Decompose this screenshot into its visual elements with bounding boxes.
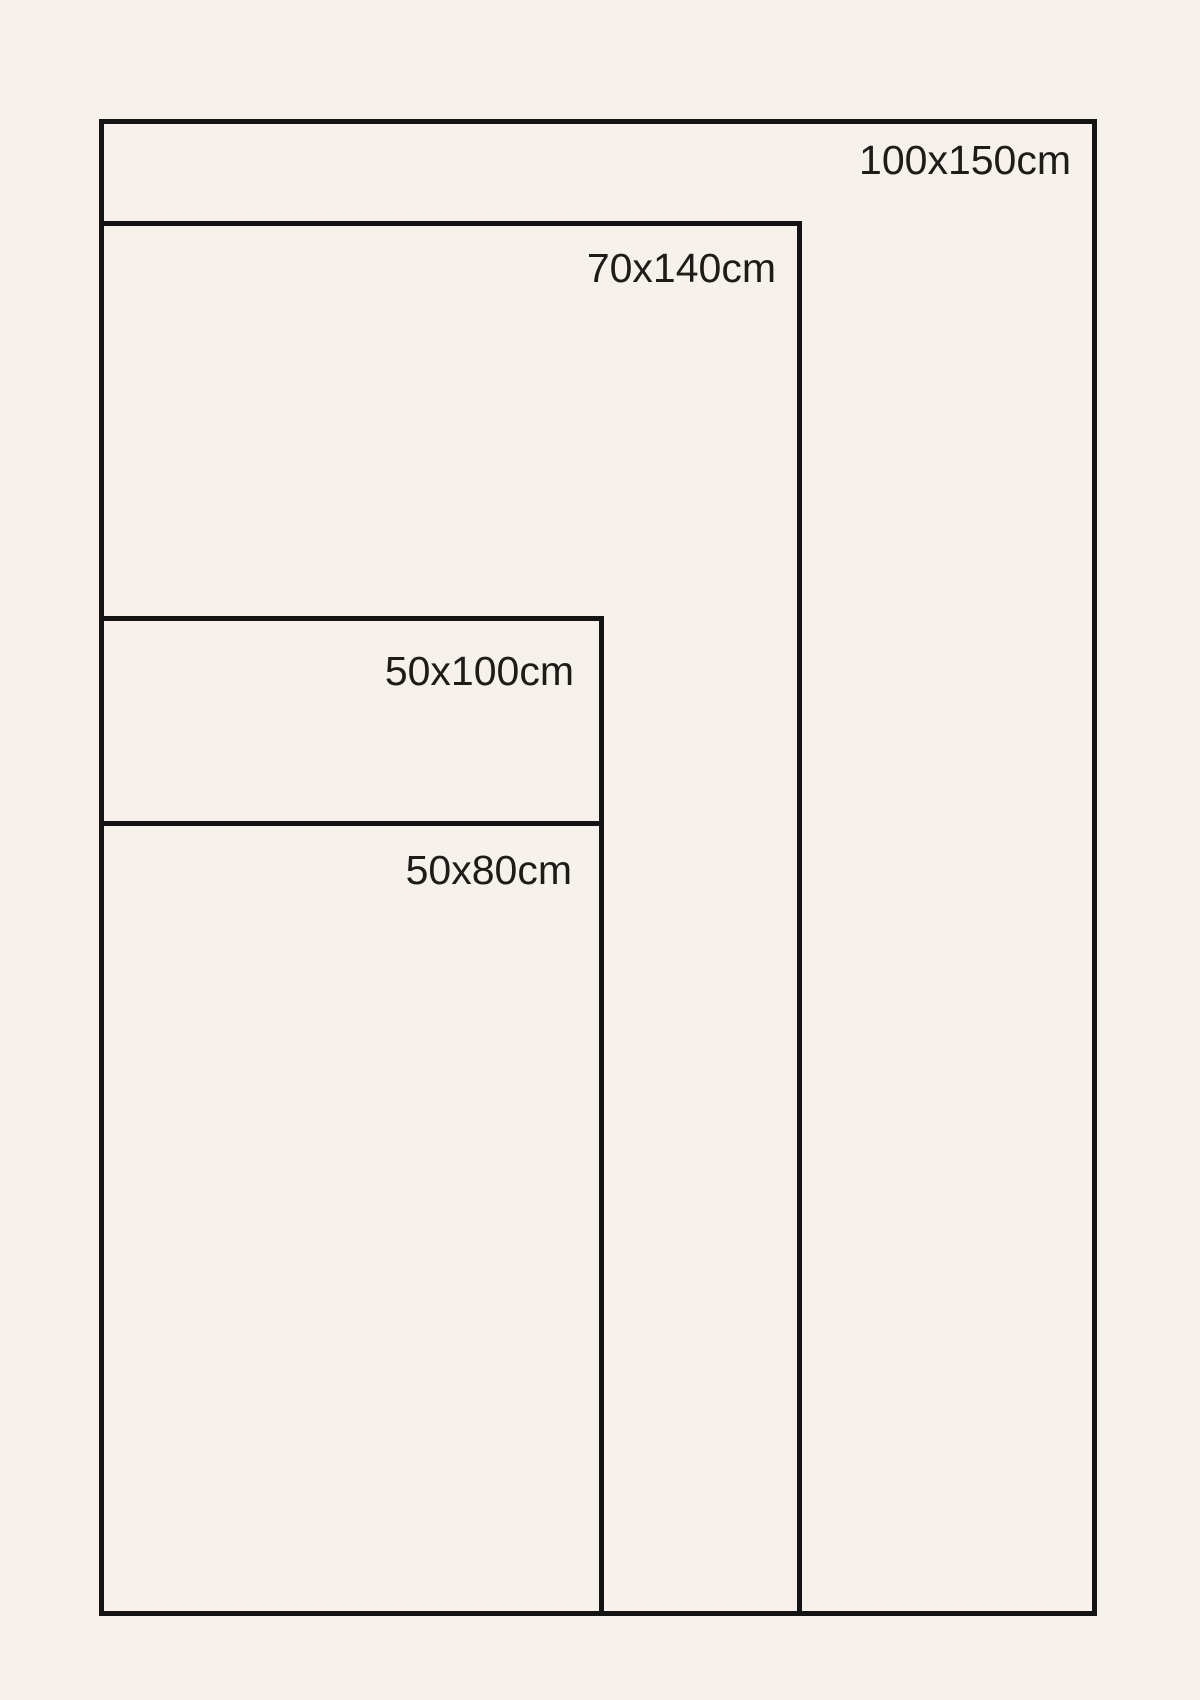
size-label-50x100: 50x100cm xyxy=(385,621,599,692)
size-label-100x150: 100x150cm xyxy=(859,124,1092,181)
size-rect-50x80: 50x80cm xyxy=(99,821,604,1616)
size-label-70x140: 70x140cm xyxy=(587,226,797,289)
size-label-50x80: 50x80cm xyxy=(406,826,599,891)
size-comparison-diagram: 100x150cm 70x140cm 50x100cm 50x80cm xyxy=(0,0,1200,1700)
